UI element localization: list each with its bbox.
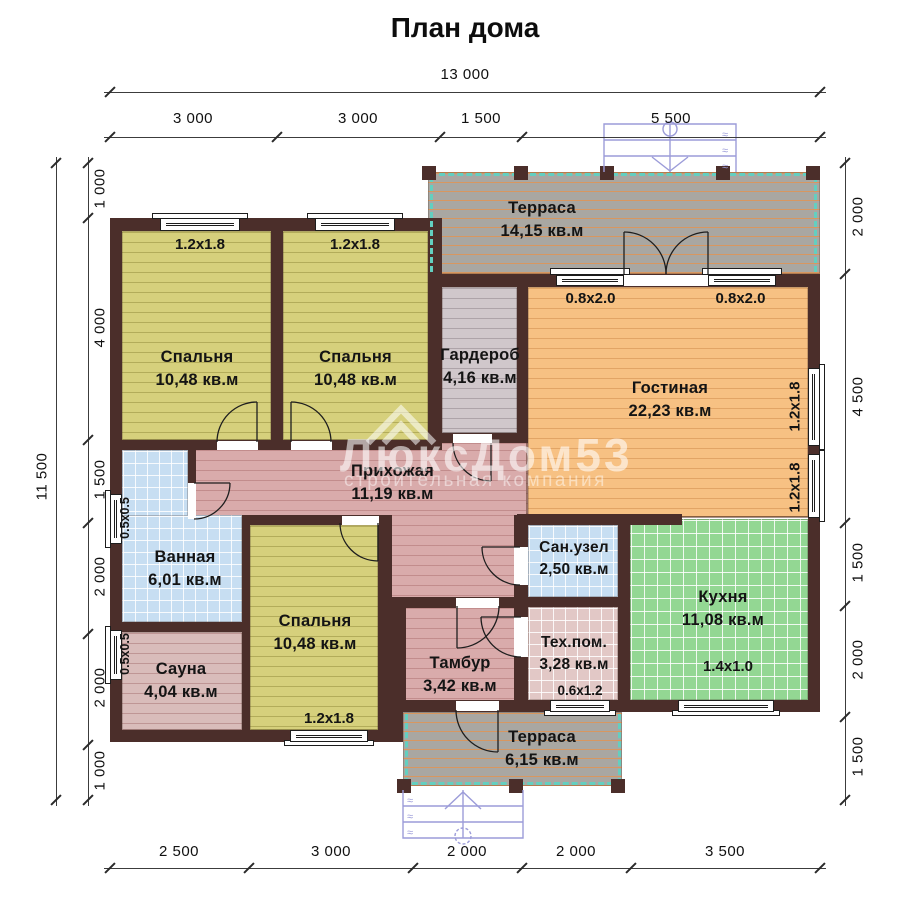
dim-line-left-total [56,157,57,806]
door-arc-bathroom [194,483,230,519]
door-arc-bedroom2 [291,402,331,442]
door-arc-terrace-right [666,232,708,274]
dim-line-top-total [104,92,826,93]
stairs-break-mark: ≈ [722,161,728,173]
stairs-break-mark: ≈ [407,795,413,807]
door-arc-bedroom3 [340,523,378,561]
dim-left-seg-1: 4 000 [92,293,109,363]
dim-line-left-segments [88,157,89,806]
door-arc-tambour-top [457,606,499,648]
door-arc-terrace-left [624,232,666,274]
dim-bottom-seg-4: 3 500 [655,843,795,860]
door-arc-tech [481,617,521,657]
dim-right-seg-0: 2 000 [850,182,867,252]
dim-left-seg-2: 1 500 [92,445,109,515]
dim-right-seg-4: 1 500 [850,722,867,792]
stairs-break-mark: ≈ [407,811,413,823]
floor-plan-canvas: План дома [0,0,900,900]
door-arc-tambour-terrace [456,710,498,752]
watermark-subtitle: строительная компания [344,470,607,492]
dim-left-total: 11 500 [34,442,51,512]
dim-right-seg-1: 4 500 [850,362,867,432]
dim-top-total: 13 000 [110,66,820,83]
dim-right-seg-3: 2 000 [850,625,867,695]
door-arc-wc [482,547,520,585]
dim-left-seg-3: 2 000 [92,542,109,612]
dim-left-seg-5: 1 000 [92,736,109,806]
stairs-top: ≈ ≈ ≈ [604,122,736,173]
dim-line-bottom [104,868,826,869]
door-arc-bedroom1 [217,402,257,442]
dim-left-seg-0: 1 000 [92,154,109,224]
door-swings [194,232,708,752]
stairs-break-mark: ≈ [722,129,728,141]
dim-line-right-segments [845,157,846,806]
dim-top-seg-1: 3 000 [288,110,428,127]
dim-top-seg-0: 3 000 [123,110,263,127]
dim-right-seg-2: 1 500 [850,528,867,598]
dim-left-seg-4: 2 000 [92,653,109,723]
dim-bottom-seg-1: 3 000 [261,843,401,860]
stairs-break-mark: ≈ [722,145,728,157]
stairs-bottom: ≈ ≈ ≈ [403,790,523,844]
stairs-break-mark: ≈ [407,827,413,839]
dim-top-seg-2: 1 500 [411,110,551,127]
dim-bottom-seg-0: 2 500 [109,843,249,860]
dim-top-seg-3: 5 500 [601,110,741,127]
dim-line-top-segments [104,137,826,138]
dim-bottom-seg-3: 2 000 [506,843,646,860]
